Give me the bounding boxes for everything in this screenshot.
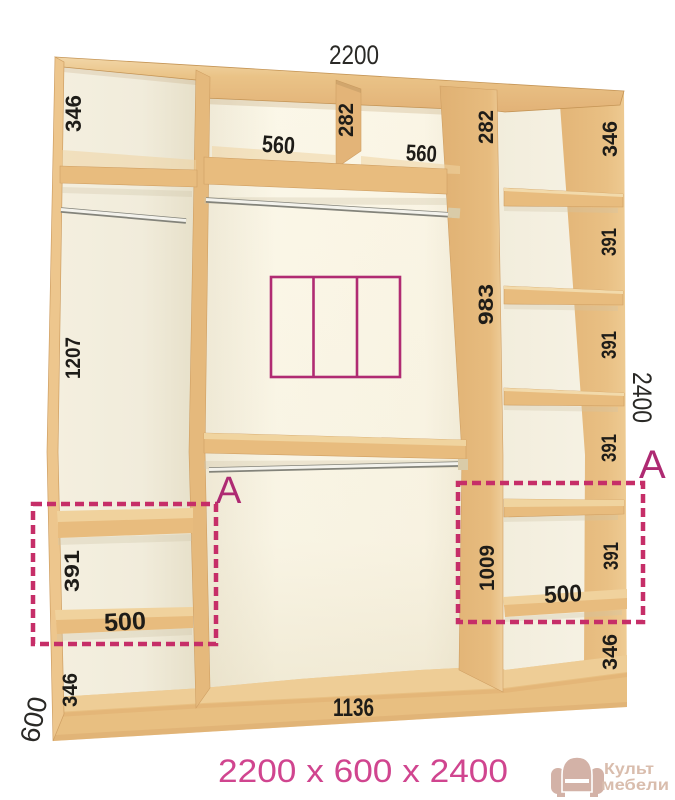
svg-text:560: 560 xyxy=(405,139,437,167)
svg-text:282: 282 xyxy=(335,103,358,137)
svg-text:391: 391 xyxy=(598,434,621,462)
svg-text:2200: 2200 xyxy=(329,40,379,70)
svg-text:346: 346 xyxy=(599,121,622,157)
svg-text:282: 282 xyxy=(475,110,498,144)
svg-text:1009: 1009 xyxy=(476,545,499,591)
svg-text:A: A xyxy=(216,470,242,512)
svg-text:1207: 1207 xyxy=(62,337,85,379)
svg-text:2200 x 600 x 2400: 2200 x 600 x 2400 xyxy=(218,753,508,789)
svg-text:мебели: мебели xyxy=(601,777,669,794)
svg-text:500: 500 xyxy=(543,580,582,609)
svg-text:391: 391 xyxy=(598,331,621,359)
svg-text:2400: 2400 xyxy=(627,372,657,423)
svg-text:391: 391 xyxy=(598,228,621,256)
svg-text:A: A xyxy=(639,443,666,487)
svg-text:346: 346 xyxy=(599,634,622,670)
svg-text:Культ: Культ xyxy=(604,761,654,778)
svg-text:500: 500 xyxy=(103,607,146,637)
svg-text:560: 560 xyxy=(261,131,296,160)
svg-text:1136: 1136 xyxy=(333,694,374,722)
svg-text:391: 391 xyxy=(600,542,623,570)
svg-text:346: 346 xyxy=(61,95,86,132)
svg-text:391: 391 xyxy=(61,550,84,592)
svg-text:346: 346 xyxy=(59,673,82,707)
svg-text:983: 983 xyxy=(475,284,498,325)
